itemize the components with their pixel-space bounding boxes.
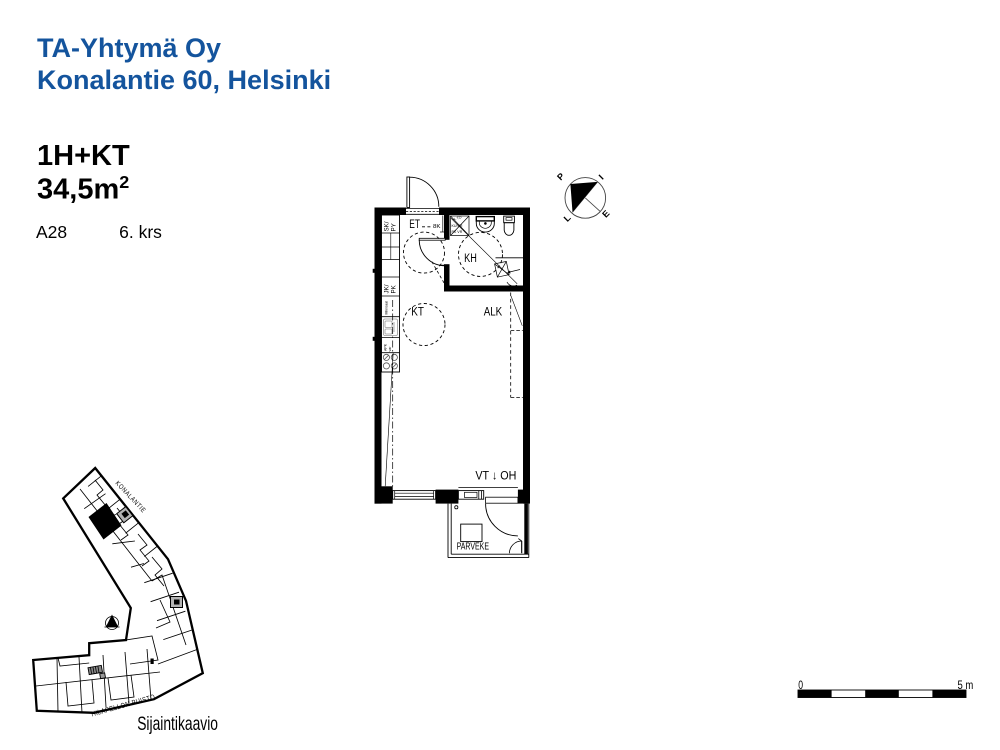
svg-text:ET: ET [409,217,420,231]
svg-text:KUIVR: KUIVR [452,224,463,228]
svg-text:P: P [555,171,566,182]
svg-text:VT ↓ OH: VT ↓ OH [475,468,516,482]
svg-text:0: 0 [798,678,803,692]
svg-text:L: L [562,212,573,223]
svg-text:KT: KT [411,304,424,318]
svg-text:APK: APK [384,343,388,351]
svg-text:E: E [600,208,611,219]
svg-text:8K: 8K [433,224,441,230]
svg-text:5 m: 5 m [958,678,974,692]
svg-text:Sijaintikaavio: Sijaintikaavio [137,713,218,735]
svg-text:KH: KH [464,253,477,265]
svg-text:JK/: JK/ [384,284,391,293]
svg-text:PK VR: PK VR [452,230,463,234]
svg-text:ALK: ALK [484,304,503,318]
svg-text:Mikroaal: Mikroaal [385,301,389,315]
svg-text:var: var [388,346,392,352]
svg-text:PARVEKE: PARVEKE [457,542,490,553]
svg-text:PK: PK [391,284,398,293]
svg-text:I: I [597,173,606,182]
svg-text:PY: PY [391,223,398,231]
svg-text:SK/: SK/ [384,221,391,231]
